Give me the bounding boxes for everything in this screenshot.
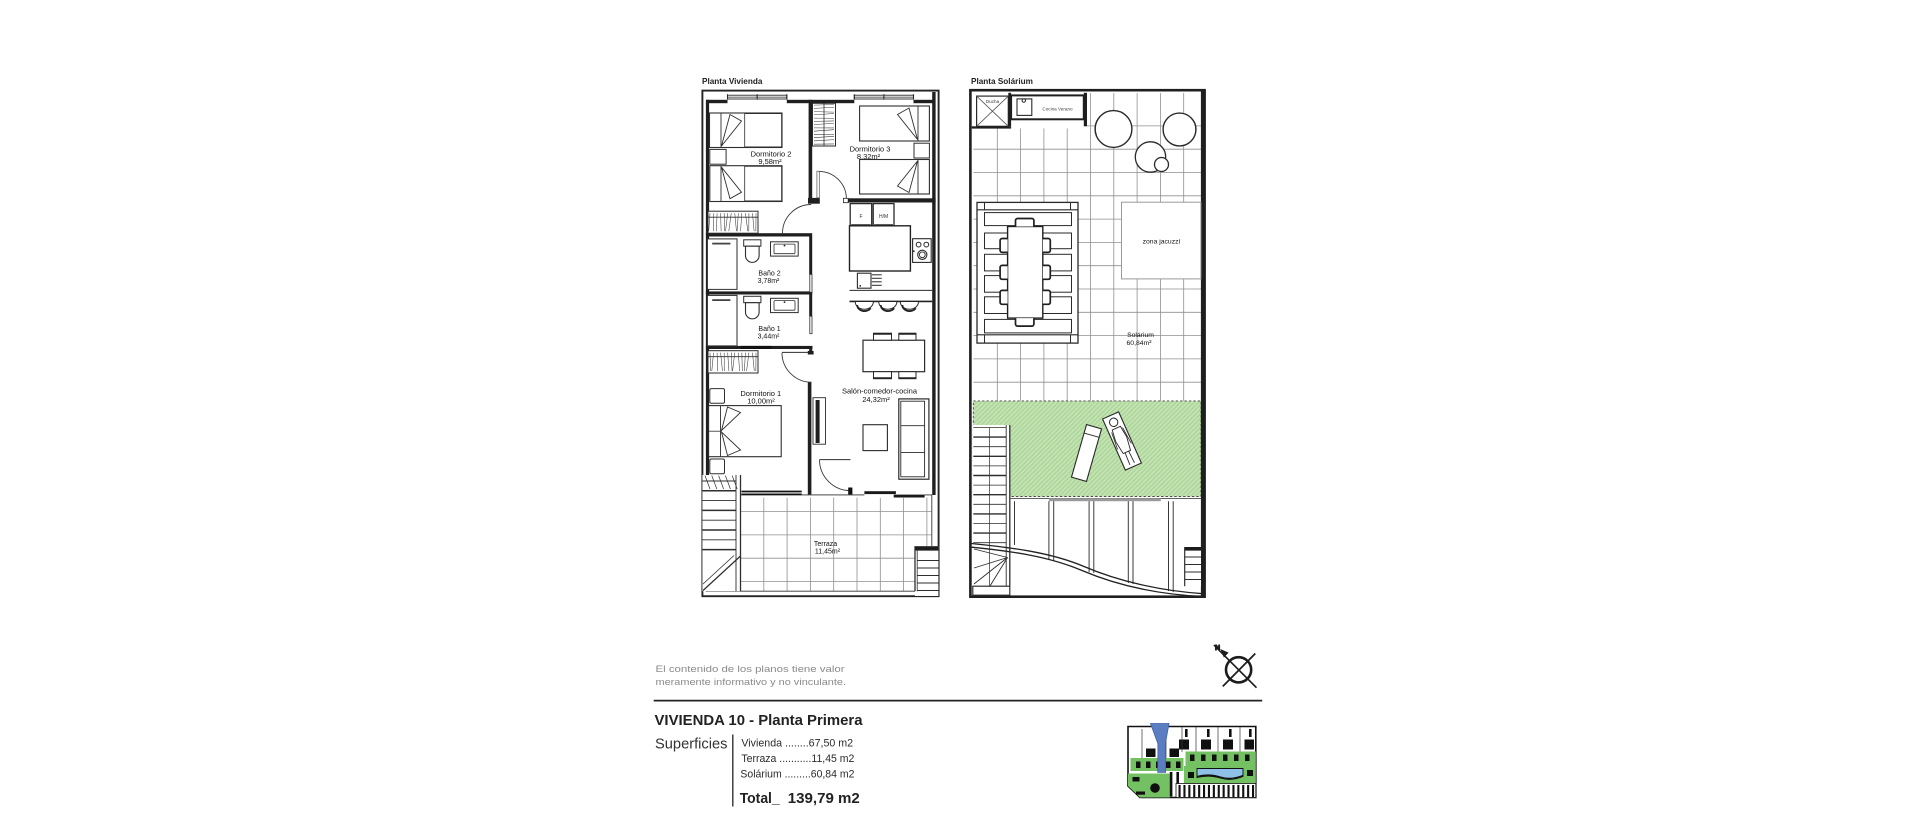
svg-text:VIVIENDA 10 - Planta Primera: VIVIENDA 10 - Planta Primera [655,713,864,729]
svg-text:zona jacuzzí: zona jacuzzí [1143,239,1181,246]
svg-text:11,45m²: 11,45m² [815,549,841,556]
svg-text:Total_: Total_ [740,791,781,807]
svg-text:139,79 m2: 139,79 m2 [788,791,860,807]
svg-text:24,32m²: 24,32m² [862,395,890,404]
svg-text:Terraza: Terraza [814,541,837,548]
svg-text:El contenido de los planos tie: El contenido de los planos tiene valor [656,663,845,674]
svg-text:3,78m²: 3,78m² [758,278,780,285]
svg-text:3,44m²: 3,44m² [758,334,780,341]
svg-text:Superficies: Superficies [655,737,728,753]
svg-text:9,58m²: 9,58m² [758,157,782,166]
svg-text:Planta Solárium: Planta Solárium [971,77,1033,86]
svg-text:Vivienda ........67,50 m2: Vivienda ........67,50 m2 [741,737,853,749]
svg-text:meramente informativo y no vin: meramente informativo y no vinculante. [656,676,847,687]
svg-text:Ducha: Ducha [986,99,1000,104]
svg-text:8,32m²: 8,32m² [857,152,881,161]
svg-text:Baño 1: Baño 1 [758,326,780,333]
svg-text:F: F [859,214,862,220]
svg-text:H/M: H/M [879,214,888,220]
svg-text:Baño 2: Baño 2 [758,271,780,278]
svg-text:Solárium: Solárium [1127,332,1154,339]
svg-text:60,84m²: 60,84m² [1127,340,1153,347]
svg-text:Terraza ...........11,45 m2: Terraza ...........11,45 m2 [741,753,854,765]
svg-text:Cocina Verano: Cocina Verano [1042,106,1073,111]
svg-text:Solárium .........60,84 m2: Solárium .........60,84 m2 [740,768,854,780]
svg-text:10,00m²: 10,00m² [747,397,775,406]
svg-text:Planta Vivienda: Planta Vivienda [702,77,763,86]
